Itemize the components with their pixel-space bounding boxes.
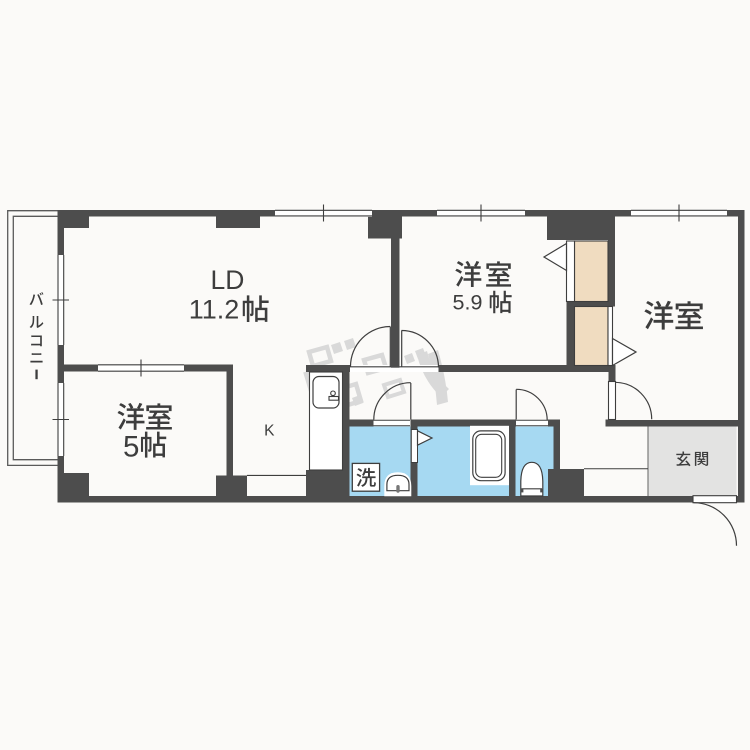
- svg-text:5: 5: [123, 431, 139, 464]
- svg-text:K: K: [264, 423, 275, 440]
- svg-text:5.9: 5.9: [453, 290, 483, 314]
- svg-text:LD: LD: [210, 265, 244, 295]
- svg-text:11.2: 11.2: [189, 295, 240, 325]
